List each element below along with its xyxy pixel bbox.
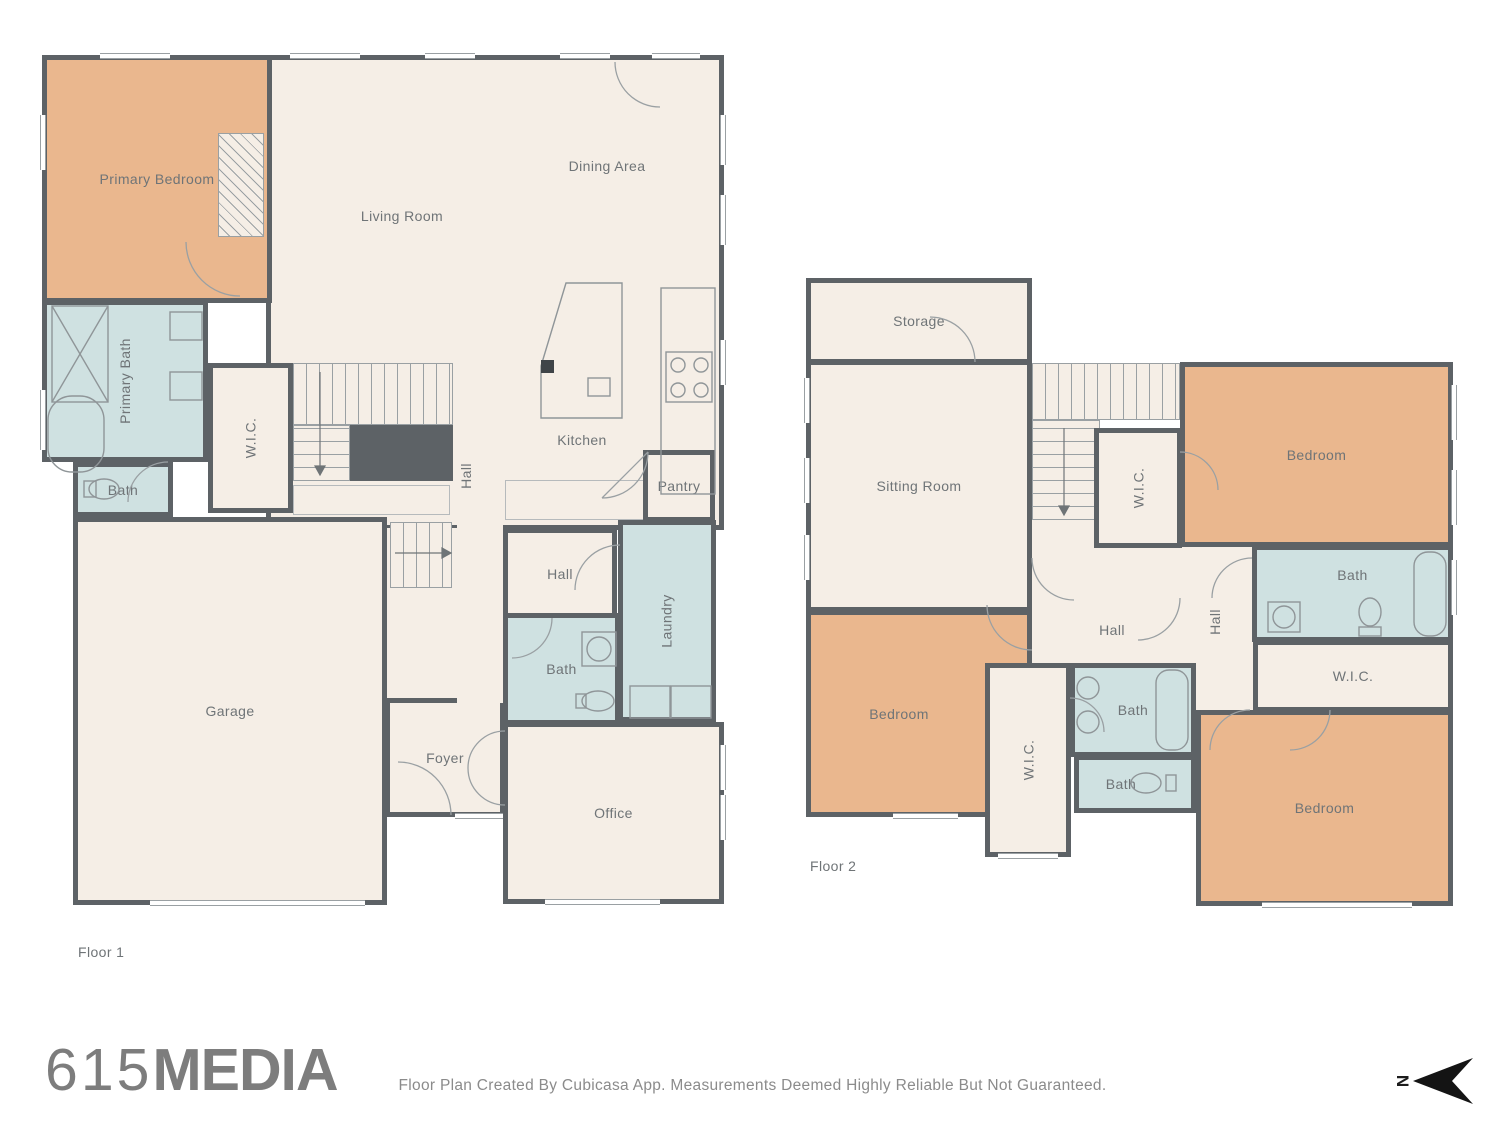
room-label-hall-stairs: Hall <box>458 463 474 489</box>
window <box>652 53 700 59</box>
window <box>1451 560 1457 615</box>
logo-suffix: MEDIA <box>152 1037 337 1103</box>
window <box>720 795 726 840</box>
room-label: Garage <box>205 703 254 719</box>
window <box>998 853 1058 859</box>
wall-opening <box>457 524 503 534</box>
window <box>455 813 503 819</box>
kitchen-counter-south <box>505 480 653 520</box>
room-wic-top-floor2: W.I.C. <box>1094 428 1182 548</box>
fireplace-icon <box>218 133 264 237</box>
wall-opening <box>457 694 503 703</box>
room-bedroom-se: Bedroom <box>1196 710 1453 906</box>
stairs-up <box>293 363 453 425</box>
room-label: Bedroom <box>1287 447 1347 463</box>
room-bath-center-floor2: Bath <box>1070 663 1196 757</box>
garage-door <box>150 900 365 906</box>
window <box>425 53 475 59</box>
room-wic-center-floor2: W.I.C. <box>985 663 1071 857</box>
room-label-hall2-east: Hall <box>1207 609 1223 635</box>
window <box>804 378 810 423</box>
room-label-hall2: Hall <box>1099 622 1125 638</box>
room-label: Bath <box>1337 567 1367 583</box>
window <box>545 899 660 905</box>
window <box>40 390 46 450</box>
room-label: Office <box>594 805 633 821</box>
stairs-garage <box>390 522 452 588</box>
room-label: Bath <box>546 661 576 677</box>
window <box>40 115 46 170</box>
room-sitting: Sitting Room <box>806 360 1032 612</box>
window <box>720 115 726 165</box>
room-label: W.I.C. <box>1130 468 1146 509</box>
window <box>893 813 958 819</box>
room-label-dining: Dining Area <box>569 158 646 174</box>
room-hall-center-floor1: Hall <box>503 528 617 620</box>
room-label: W.I.C. <box>1333 668 1374 684</box>
room-label: Primary Bath <box>117 338 133 424</box>
room-label-living: Living Room <box>361 208 443 224</box>
room-label: Hall <box>547 566 573 582</box>
logo-prefix: 615 <box>45 1037 152 1103</box>
room-label: Sitting Room <box>877 478 962 494</box>
window <box>560 53 610 59</box>
room-label: Bath <box>1118 702 1148 718</box>
room-laundry: Laundry <box>618 520 716 722</box>
stairs-landing <box>293 425 350 481</box>
room-label: Pantry <box>658 478 701 494</box>
mudroom-bench <box>293 485 450 515</box>
stairs-floor2-run <box>1032 420 1100 520</box>
room-office: Office <box>503 722 724 904</box>
room-bath-upper: Bath <box>73 462 173 517</box>
window <box>1451 385 1457 440</box>
room-label: W.I.C. <box>242 418 258 459</box>
floor1-label: Floor 1 <box>78 944 124 960</box>
floor2-label: Floor 2 <box>810 858 856 874</box>
window <box>720 195 726 245</box>
room-primary-bath: Primary Bath <box>42 300 208 462</box>
north-label: N <box>1392 1075 1412 1087</box>
window <box>100 53 170 59</box>
room-bedroom-ne: Bedroom <box>1180 362 1453 547</box>
window <box>290 53 360 59</box>
room-label: Bedroom <box>869 706 929 722</box>
room-label: Foyer <box>426 750 464 766</box>
stair-void <box>350 425 453 481</box>
stairs-floor2-upper <box>1032 363 1180 420</box>
room-label: W.I.C. <box>1020 740 1036 781</box>
room-label: Laundry <box>659 594 675 647</box>
window <box>720 340 726 385</box>
disclaimer-text: Floor Plan Created By Cubicasa App. Meas… <box>380 1077 1125 1095</box>
room-bath-small-floor2: Bath <box>1074 755 1196 813</box>
room-label-kitchen: Kitchen <box>557 432 607 448</box>
room-label: Bath <box>108 482 138 498</box>
north-arrow-icon <box>1413 1058 1473 1104</box>
room-bath-ne: Bath <box>1252 545 1453 642</box>
room-pantry: Pantry <box>643 450 715 522</box>
room-label: Primary Bedroom <box>100 171 215 187</box>
room-wic-floor1: W.I.C. <box>208 363 293 513</box>
room-storage: Storage <box>806 278 1032 364</box>
window <box>720 745 726 790</box>
north-arrow: N <box>1396 1058 1473 1104</box>
floorplan-canvas: Primary Bedroom Primary Bath Bath W.I.C.… <box>0 0 1500 1125</box>
room-foyer: Foyer <box>385 698 505 817</box>
room-label: Storage <box>893 313 945 329</box>
window <box>1451 470 1457 525</box>
room-wic-east: W.I.C. <box>1253 640 1453 712</box>
window <box>804 535 810 580</box>
window <box>1262 902 1412 908</box>
window <box>804 458 810 503</box>
room-bath-center-floor1: Bath <box>503 613 620 725</box>
room-label: Bedroom <box>1295 800 1355 816</box>
room-label: Bath <box>1106 776 1136 792</box>
company-logo: 615MEDIA <box>45 1038 338 1103</box>
room-garage: Garage <box>73 517 387 905</box>
